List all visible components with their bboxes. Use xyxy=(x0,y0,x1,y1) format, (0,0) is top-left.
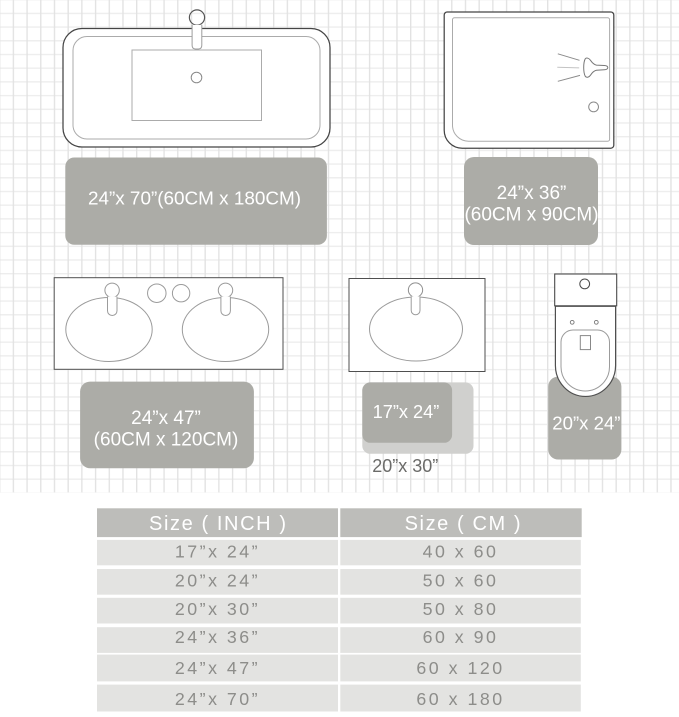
svg-text:20”x 30”: 20”x 30” xyxy=(175,599,260,619)
svg-text:Size ( CM ): Size ( CM ) xyxy=(405,513,523,535)
svg-text:60 x 180: 60 x 180 xyxy=(416,689,504,709)
svg-text:60 x 120: 60 x 120 xyxy=(416,658,504,678)
svg-text:24”x 47”: 24”x 47” xyxy=(131,408,201,429)
svg-text:20”x 24”: 20”x 24” xyxy=(552,413,620,434)
svg-text:24”x 70”(60CM x 180CM): 24”x 70”(60CM x 180CM) xyxy=(88,189,301,210)
svg-text:20”x 30”: 20”x 30” xyxy=(372,456,438,476)
svg-text:(60CM x 120CM): (60CM x 120CM) xyxy=(94,429,239,450)
svg-text:60 x 90: 60 x 90 xyxy=(423,627,499,647)
svg-text:50 x 80: 50 x 80 xyxy=(423,599,499,619)
svg-text:17”x 24”: 17”x 24” xyxy=(175,542,260,562)
svg-text:Size ( INCH ): Size ( INCH ) xyxy=(149,513,288,535)
svg-text:24”x 36”: 24”x 36” xyxy=(175,627,260,647)
svg-text:(60CM x 90CM): (60CM x 90CM) xyxy=(464,205,598,226)
svg-text:40 x 60: 40 x 60 xyxy=(423,542,499,562)
svg-text:24”x 36”: 24”x 36” xyxy=(497,183,567,204)
svg-text:50 x 60: 50 x 60 xyxy=(423,570,499,590)
svg-text:24”x 70”: 24”x 70” xyxy=(175,689,260,709)
svg-text:20”x 24”: 20”x 24” xyxy=(175,570,260,590)
svg-text:17”x 24”: 17”x 24” xyxy=(373,402,440,422)
svg-text:24”x 47”: 24”x 47” xyxy=(175,658,260,678)
